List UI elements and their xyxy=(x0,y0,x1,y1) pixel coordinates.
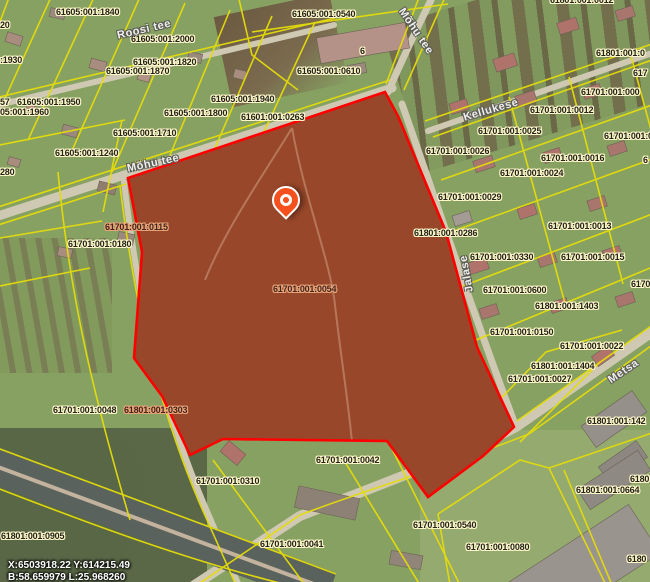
parcel-label: 61701:001:0012 xyxy=(530,105,593,115)
parcel-label: 61701:001:0150 xyxy=(490,327,553,337)
parcel-label: 61801:001:1404 xyxy=(531,361,594,371)
parcel-label: 61701:001:0540 xyxy=(413,520,476,530)
parcel-label: 61701:001:0029 xyxy=(438,192,501,202)
parcel-label: 61701:001:0016 xyxy=(541,153,604,163)
parcel-label: 61701:001:0024 xyxy=(500,168,563,178)
parcel-label: 61605:001:0540 xyxy=(292,9,355,19)
coordinate-readout-xy: X:6503918.22 Y:614215.49 xyxy=(8,560,130,571)
parcel-label: 61601:001:0263 xyxy=(241,112,304,122)
parcel-label: 61701:001:0310 xyxy=(196,476,259,486)
parcel-label: 61701:001:0025 xyxy=(478,126,541,136)
parcel-label: 61701:001:0330 xyxy=(470,252,533,262)
parcel-label: 61605:001:1870 xyxy=(106,66,169,76)
parcel-label: 61605:001:1800 xyxy=(164,108,227,118)
parcel-label: 61701:001:0180 xyxy=(68,239,131,249)
parcel-label: 05:001:1960 xyxy=(0,107,49,117)
map-canvas[interactable]: 61605:001:184061605:001:054061605:001:20… xyxy=(0,0,650,582)
parcel-label: 61801:001:0664 xyxy=(576,485,639,495)
parcel-label: 61701:001:000 xyxy=(581,87,639,97)
parcel-label: 61605:001:1940 xyxy=(211,94,274,104)
parcel-label: 617 xyxy=(633,68,647,78)
parcel-label: 61605:001:0610 xyxy=(297,66,360,76)
parcel-label: 61605:001:1710 xyxy=(113,128,176,138)
parcel-label: 61801:001:0286 xyxy=(414,228,477,238)
parcel-label: 6 xyxy=(360,46,365,56)
parcel-label: 61701:001:0015 xyxy=(561,252,624,262)
parcel-label: 61801:001:0905 xyxy=(1,531,64,541)
parcel-label: 61701:001:0041 xyxy=(260,539,323,549)
parcel-label: 61701:001:0042 xyxy=(316,455,379,465)
parcel-label: 61605:001:1840 xyxy=(56,7,119,17)
parcel-label: 61701:001:0 xyxy=(604,131,650,141)
parcel-label: 61701:001:0026 xyxy=(426,146,489,156)
parcel-label: 20 xyxy=(0,20,10,30)
parcel-label: 280 xyxy=(0,167,14,177)
parcel-label: 61701:001:0048 xyxy=(53,405,116,415)
parcel-label: 61701:001:0600 xyxy=(483,285,546,295)
parcel-label: :1930 xyxy=(0,55,22,65)
parcel-label: 61801:001:0303 xyxy=(124,405,187,415)
parcel-label: 57 xyxy=(0,97,10,107)
parcel-label: 61701:001:0027 xyxy=(508,374,571,384)
parcel-label: 61701:001:0054 xyxy=(273,284,336,294)
parcel-label: 61701:001:0013 xyxy=(548,221,611,231)
parcel-label: 61605:001:1240 xyxy=(55,148,118,158)
parcel-label: 61605:001:1950 xyxy=(17,97,80,107)
parcel-label: 6170 xyxy=(631,279,650,289)
parcel-label: 6180 xyxy=(630,474,649,484)
coordinate-readout-bl: B:58.659979 L:25.968260 xyxy=(8,572,125,582)
parcel-label: 61801:001:1403 xyxy=(535,301,598,311)
parcel-label: 61801:001:142 xyxy=(587,416,645,426)
parcel-label: 61801:001:0 xyxy=(596,48,645,58)
parcel-label: 61701:001:0022 xyxy=(560,341,623,351)
parcel-label: 61701:001:0080 xyxy=(466,542,529,552)
parcel-label: 61801:001:0012 xyxy=(550,0,613,5)
parcel-label: 6 xyxy=(643,155,648,165)
parcel-label: 61701:001:0115 xyxy=(105,222,168,232)
parcel-label: 6180 xyxy=(627,554,646,564)
